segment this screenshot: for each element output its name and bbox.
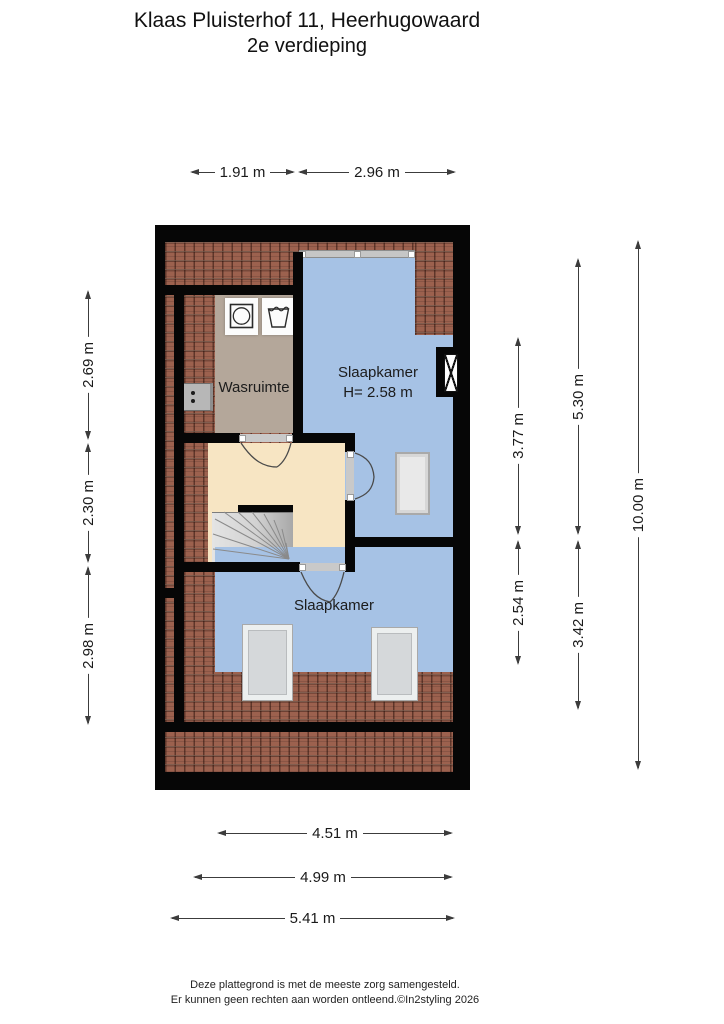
- dimension-value: 5.41 m: [285, 910, 341, 927]
- disclaimer: Deze plattegrond is met de meeste zorg s…: [20, 978, 630, 1008]
- dormer-window: [299, 250, 415, 258]
- floor-subtitle: 2e verdieping: [47, 34, 567, 59]
- dimension-value: 2.54 m: [510, 575, 527, 631]
- wall: [165, 722, 453, 732]
- dimension-left-2: 2.30 m: [77, 443, 99, 563]
- dimension-value: 3.77 m: [510, 408, 527, 464]
- dimension-value: 2.69 m: [80, 337, 97, 393]
- dimension-right-inner-1: 3.77 m: [507, 337, 529, 535]
- dimension-left-3: 2.98 m: [77, 566, 99, 725]
- page-title: Klaas Pluisterhof 11, Heerhugowaard 2e v…: [47, 8, 567, 59]
- floorplan: Slaapkamer H= 2.58 m Wasruimte Slaapkame…: [155, 225, 470, 790]
- wall: [174, 433, 240, 443]
- dimension-value: 10.00 m: [630, 473, 647, 537]
- floorplan-page: Klaas Pluisterhof 11, Heerhugowaard 2e v…: [0, 0, 724, 1024]
- dimension-value: 5.30 m: [570, 369, 587, 425]
- dimension-value: 1.91 m: [215, 164, 271, 181]
- roof-window-right: [372, 628, 417, 700]
- dimension-value: 4.99 m: [295, 869, 351, 886]
- roof-tiles-patch: [415, 242, 453, 335]
- room-height-note: H= 2.58 m: [303, 383, 453, 403]
- wall: [174, 295, 184, 723]
- door-slaapkamer-bottom: [300, 563, 345, 571]
- room-name: Wasruimte: [210, 378, 298, 398]
- dimension-value: 2.30 m: [80, 475, 97, 531]
- wall: [292, 433, 355, 443]
- dimension-value: 4.51 m: [307, 825, 363, 842]
- dimension-bottom-3: 5.41 m: [170, 907, 455, 929]
- room-label-wasruimte: Wasruimte: [210, 378, 298, 398]
- dimension-right-inner-2: 2.54 m: [507, 540, 529, 665]
- dimension-right-middle-1: 5.30 m: [567, 258, 589, 535]
- wall: [355, 537, 453, 547]
- dimension-value: 2.96 m: [349, 164, 405, 181]
- roof-window-left: [243, 625, 292, 700]
- room-label-slaapkamer-bottom: Slaapkamer: [215, 596, 453, 616]
- dimension-left-1: 2.69 m: [77, 290, 99, 440]
- wall: [165, 285, 303, 295]
- dimension-right-middle-2: 3.42 m: [567, 540, 589, 710]
- wall: [165, 588, 184, 598]
- meter-cabinet-icon: [183, 383, 213, 411]
- door-wasruimte: [240, 434, 292, 442]
- radiator: [395, 452, 430, 515]
- dimension-value: 2.98 m: [80, 618, 97, 674]
- laundry-sink-icon: [262, 298, 295, 335]
- wall: [184, 562, 300, 572]
- dimension-top-1: 1.91 m: [190, 161, 295, 183]
- door-slaapkamer-top: [346, 452, 354, 500]
- room-label-slaapkamer-top: Slaapkamer H= 2.58 m: [303, 363, 453, 404]
- address-title: Klaas Pluisterhof 11, Heerhugowaard: [47, 8, 567, 34]
- wall: [345, 562, 355, 572]
- window-post: [354, 251, 361, 258]
- disclaimer-line2: Er kunnen geen rechten aan worden ontlee…: [20, 993, 630, 1008]
- dimension-right-outer-1: 10.00 m: [627, 240, 649, 770]
- room-name: Slaapkamer: [215, 596, 453, 616]
- wall: [345, 500, 355, 567]
- room-name: Slaapkamer: [303, 363, 453, 383]
- wall: [238, 505, 293, 512]
- dimension-bottom-2: 4.99 m: [193, 866, 453, 888]
- dimension-value: 3.42 m: [570, 597, 587, 653]
- window-post: [408, 251, 415, 258]
- washing-machine-icon: [225, 298, 258, 335]
- wall: [293, 252, 303, 443]
- disclaimer-line1: Deze plattegrond is met de meeste zorg s…: [20, 978, 630, 993]
- dimension-bottom-1: 4.51 m: [217, 822, 453, 844]
- dimension-top-2: 2.96 m: [298, 161, 456, 183]
